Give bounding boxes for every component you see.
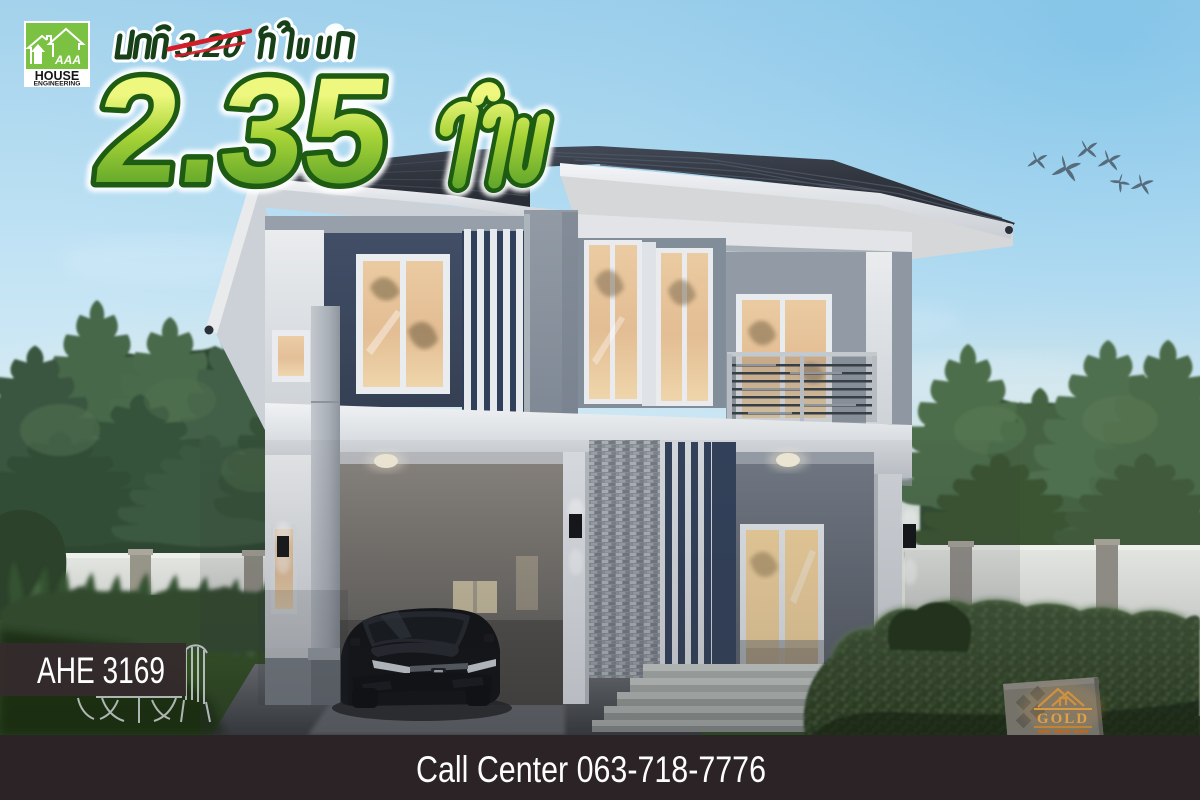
svg-text:ENGINEERING: ENGINEERING <box>34 81 81 88</box>
svg-text:Call Center 063-718-7776: Call Center 063-718-7776 <box>416 749 766 790</box>
svg-text:GOLD: GOLD <box>1037 711 1089 727</box>
svg-text:AHE 3169: AHE 3169 <box>37 650 165 691</box>
svg-text:2.35: 2.35 <box>88 46 398 214</box>
svg-text:AAA: AAA <box>54 53 81 67</box>
